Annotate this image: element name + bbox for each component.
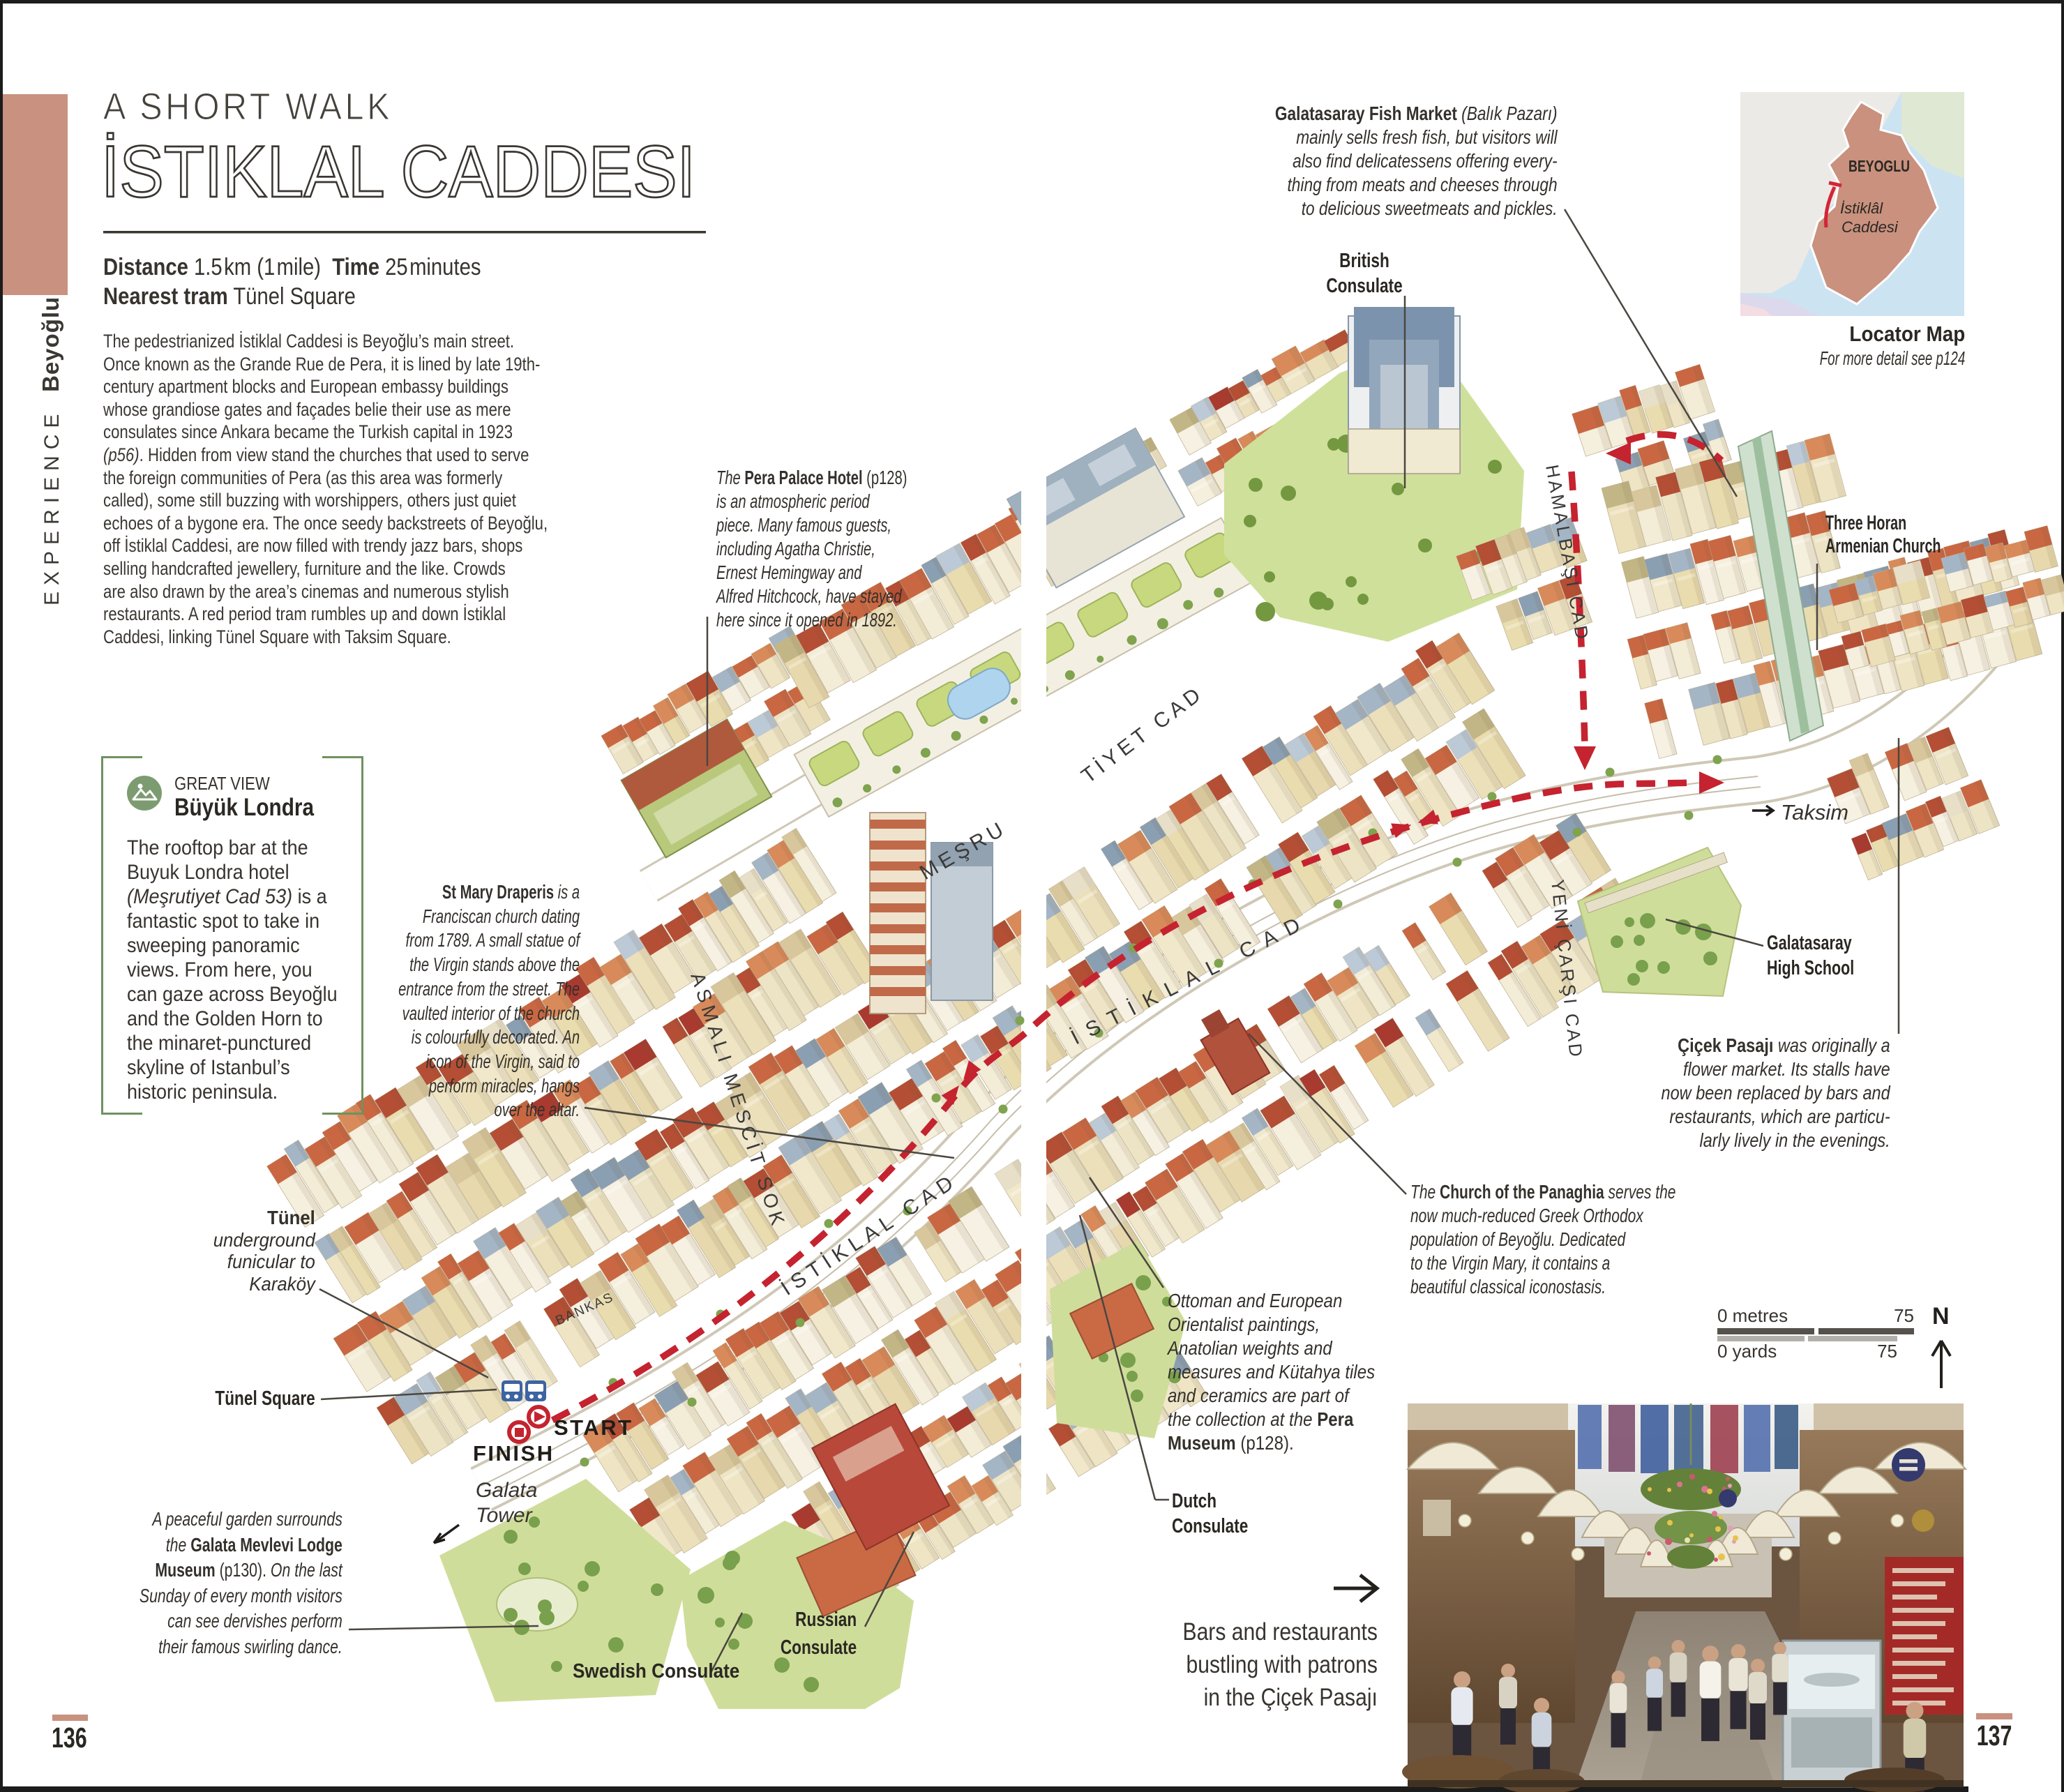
svg-text:0 metres: 0 metres xyxy=(1717,1305,1788,1326)
svg-text:0 yards: 0 yards xyxy=(1717,1341,1777,1362)
svg-text:BEYOGLU: BEYOGLU xyxy=(1848,157,1910,175)
svg-text:Tower: Tower xyxy=(476,1504,533,1527)
svg-text:TİYET CAD: TİYET CAD xyxy=(1077,682,1208,788)
svg-text:A SHORT WALK: A SHORT WALK xyxy=(103,86,393,128)
svg-text:75: 75 xyxy=(1877,1341,1897,1362)
svg-text:75: 75 xyxy=(1894,1305,1914,1326)
svg-text:Taksim: Taksim xyxy=(1781,800,1848,825)
svg-text:EXPERIENCE: EXPERIENCE xyxy=(40,408,63,605)
svg-text:İstiklâl: İstiklâl xyxy=(1840,199,1883,217)
svg-text:Galata: Galata xyxy=(476,1479,537,1502)
svg-text:İSTIKLAL CADDESI: İSTIKLAL CADDESI xyxy=(101,131,695,213)
svg-text:Caddesi: Caddesi xyxy=(1841,218,1899,236)
svg-text:N: N xyxy=(1932,1303,1950,1330)
svg-text:Beyoğlu: Beyoğlu xyxy=(38,296,63,392)
svg-text:FINISH: FINISH xyxy=(473,1441,555,1466)
svg-text:START: START xyxy=(554,1415,633,1440)
